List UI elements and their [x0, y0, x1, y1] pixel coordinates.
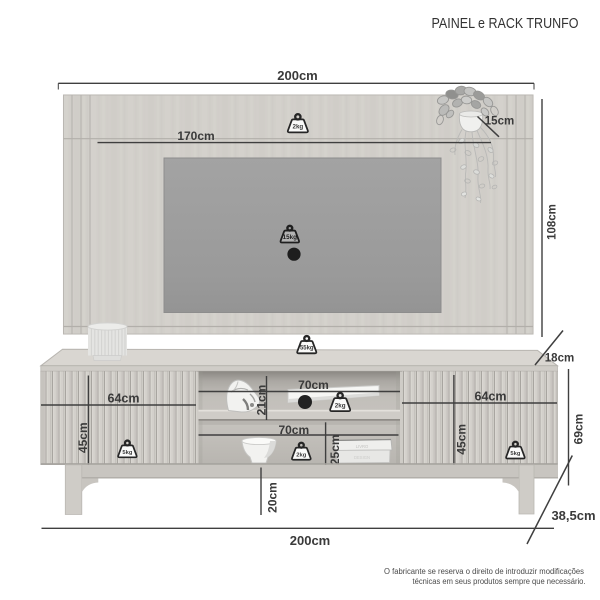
svg-text:55kg: 55kg — [300, 346, 314, 352]
svg-text:45cm: 45cm — [76, 422, 90, 453]
svg-text:108cm: 108cm — [547, 204, 559, 240]
svg-text:25cm: 25cm — [328, 434, 342, 465]
svg-text:200cm: 200cm — [290, 533, 330, 548]
svg-text:200cm: 200cm — [277, 68, 317, 83]
svg-text:70cm: 70cm — [298, 378, 329, 392]
svg-text:15kg: 15kg — [283, 234, 297, 241]
svg-text:5kg: 5kg — [510, 451, 520, 457]
svg-text:2kg: 2kg — [335, 402, 346, 409]
svg-text:64cm: 64cm — [475, 390, 507, 404]
svg-text:38,5cm: 38,5cm — [551, 508, 595, 523]
svg-text:20cm: 20cm — [266, 482, 280, 513]
svg-text:2kg: 2kg — [296, 452, 307, 458]
svg-text:69cm: 69cm — [572, 414, 586, 445]
svg-text:18cm: 18cm — [545, 353, 574, 365]
svg-text:2kg: 2kg — [292, 124, 303, 131]
svg-text:21cm: 21cm — [254, 385, 268, 416]
svg-text:64cm: 64cm — [108, 392, 140, 406]
svg-text:técnicas em seus produtos semp: técnicas em seus produtos sempre que nec… — [413, 577, 586, 586]
svg-text:LIVRO: LIVRO — [356, 444, 369, 449]
svg-text:45cm: 45cm — [454, 424, 468, 455]
svg-text:O fabricante se reserva o dire: O fabricante se reserva o direito de int… — [384, 567, 584, 576]
svg-text:DESIGN: DESIGN — [354, 455, 370, 460]
svg-text:170cm: 170cm — [177, 129, 214, 143]
svg-text:5kg: 5kg — [122, 450, 132, 456]
svg-text:PAINEL e RACK TRUNFO: PAINEL e RACK TRUNFO — [432, 15, 579, 32]
svg-text:15cm: 15cm — [485, 116, 514, 128]
svg-text:70cm: 70cm — [278, 423, 309, 437]
